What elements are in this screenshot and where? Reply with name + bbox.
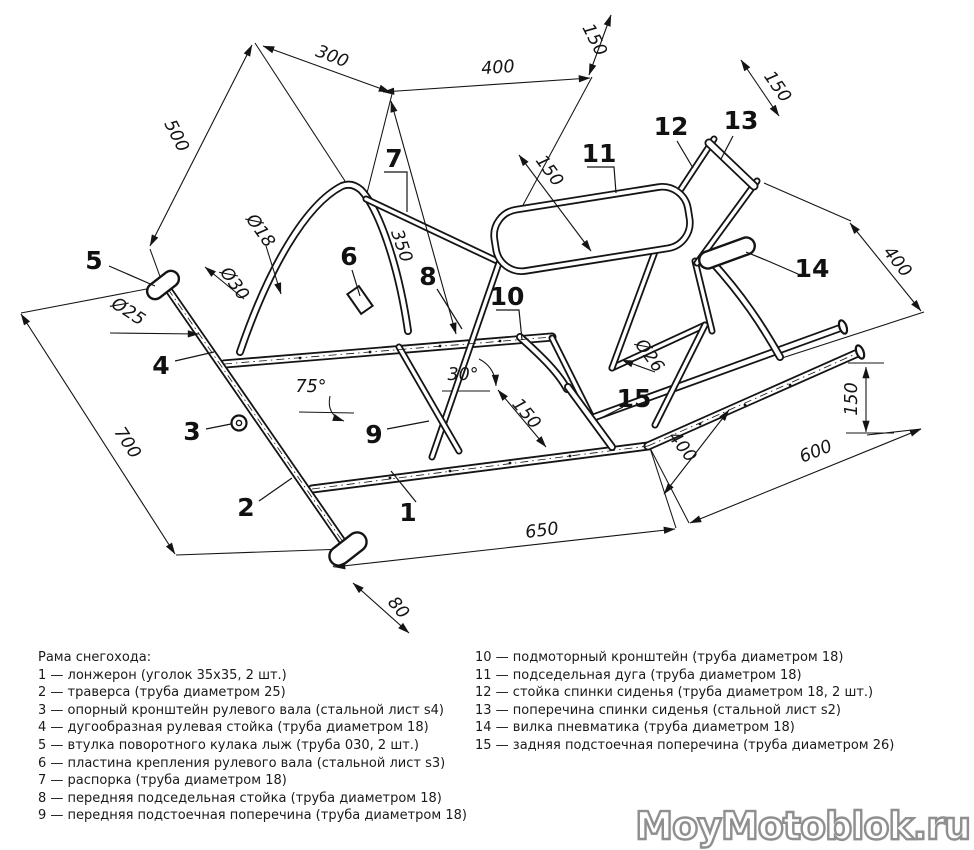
dimension-600: 600 — [690, 429, 921, 523]
dimension-150: 150 — [842, 367, 866, 432]
part-callout-11: 11 — [582, 139, 617, 193]
part-number: 9 — [365, 420, 382, 449]
dimension-label: 75° — [295, 377, 326, 397]
legend-item: 8 — передняя подседельная стойка (труба … — [38, 790, 467, 808]
dimension-Ø18: Ø18 — [241, 210, 281, 294]
part-callout-6: 6 — [340, 242, 360, 296]
dimension-label: 150 — [759, 68, 795, 107]
dimension-label: 500 — [160, 117, 193, 156]
dimension-150: 150 — [578, 15, 611, 75]
dimensions: 5003004001501504001503501507008065040060… — [21, 15, 921, 633]
part-callout-3: 3 — [183, 417, 231, 446]
part-number: 4 — [152, 351, 169, 380]
dimension-400: 400 — [850, 223, 921, 311]
dimension-label: 400 — [879, 243, 916, 282]
part-number: 6 — [340, 242, 357, 271]
part-number: 1 — [399, 498, 416, 527]
part-number: 12 — [654, 112, 689, 141]
part-callout-14: 14 — [746, 252, 829, 283]
legend-item: 2 — траверса (труба диаметром 25) — [38, 684, 467, 702]
dimension-label: 650 — [524, 519, 560, 543]
part-number: 14 — [795, 254, 830, 283]
part-number: 7 — [385, 144, 402, 173]
legend-item: 14 — вилка пневматика (труба диаметром 1… — [475, 719, 894, 737]
dimension-Ø30: Ø30 — [205, 263, 253, 305]
legend-item: 3 — опорный кронштейн рулевого вала (ста… — [38, 702, 467, 720]
legend-item: 6 — пластина крепления рулевого вала (ст… — [38, 755, 467, 773]
dimension-label: Ø18 — [241, 210, 279, 252]
part-callout-13: 13 — [721, 106, 758, 159]
legend-title: Рама снегохода: — [38, 649, 467, 667]
part-number: 8 — [419, 262, 436, 291]
dimension-150: 150 — [498, 390, 546, 447]
dimension-700: 700 — [21, 314, 175, 554]
part-number: 3 — [183, 417, 200, 446]
dimension-label: 150 — [842, 382, 862, 415]
legend-item: 13 — поперечина спинки сиденья (стальной… — [475, 702, 894, 720]
dimension-label: 80 — [383, 593, 413, 623]
dimension-80: 80 — [353, 583, 413, 633]
dimension-label: 300 — [313, 42, 351, 73]
legend-item: 4 — дугообразная рулевая стойка (труба д… — [38, 719, 467, 737]
legend-right-column: 10 — подмоторный кронштейн (труба диамет… — [475, 649, 894, 755]
part-number: 15 — [617, 384, 652, 413]
part-callout-4: 4 — [152, 351, 214, 380]
dimension-label: 400 — [481, 57, 516, 79]
dimension-label: 150 — [531, 152, 567, 191]
dimension-Ø26: Ø26 — [622, 335, 668, 377]
dimension-label: 600 — [797, 436, 835, 467]
dimension-label: 30° — [447, 365, 478, 385]
dimension-400: 400 — [383, 57, 590, 92]
part-number: 10 — [490, 282, 525, 311]
dimension-label: 150 — [508, 395, 545, 433]
watermark-logo: MoyMotoblok.ru — [635, 804, 970, 848]
extension-lines — [21, 43, 924, 567]
part-callout-12: 12 — [654, 112, 693, 168]
part-callout-8: 8 — [419, 262, 462, 329]
part-callout-5: 5 — [85, 246, 155, 286]
part-callout-7: 7 — [384, 144, 407, 212]
dimension-30deg: 30° — [447, 365, 478, 385]
dimension-label: 150 — [578, 21, 611, 60]
part-callout-10: 10 — [490, 282, 525, 340]
part-number: 13 — [724, 106, 759, 135]
part-number: 11 — [582, 139, 617, 168]
legend-item: 1 — лонжерон (уголок 35х35, 2 шт.) — [38, 667, 467, 685]
steering-plate — [347, 286, 372, 314]
part-number: 2 — [237, 493, 254, 522]
part-callout-9: 9 — [365, 420, 429, 449]
dimension-label: 700 — [110, 424, 145, 463]
dimension-label: Ø25 — [107, 293, 149, 330]
legend-item: 9 — передняя подстоечная поперечина (тру… — [38, 807, 467, 825]
legend-left-column: Рама снегохода: 1 — лонжерон (уголок 35х… — [38, 649, 467, 825]
legend-item: 7 — распорка (труба диаметром 18) — [38, 772, 467, 790]
dimension-75deg: 75° — [295, 377, 326, 397]
legend-item: 11 — подседельная дуга (труба диаметром … — [475, 667, 894, 685]
part-callouts: 123456789101112131415 — [85, 106, 829, 527]
legend-item: 12 — стойка спинки сиденья (труба диамет… — [475, 684, 894, 702]
legend-item: 15 — задняя подстоечная поперечина (труб… — [475, 737, 894, 755]
part-callout-2: 2 — [237, 478, 292, 522]
dimension-350: 350 — [386, 101, 456, 334]
dimension-500: 500 — [150, 45, 252, 246]
dimension-650: 650 — [334, 519, 675, 567]
part-number: 5 — [85, 246, 102, 275]
legend-item: 10 — подмоторный кронштейн (труба диамет… — [475, 649, 894, 667]
legend-item: 5 — втулка поворотного кулака лыж (труба… — [38, 737, 467, 755]
dimension-label: Ø30 — [215, 263, 253, 305]
